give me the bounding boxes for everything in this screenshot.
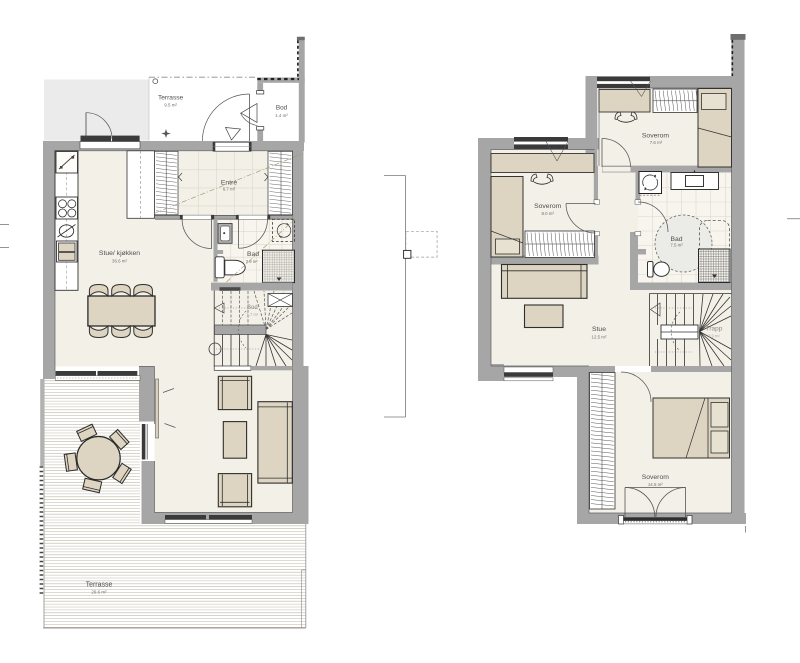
svg-text:Terrasse: Terrasse <box>86 581 113 588</box>
svg-text:Bad: Bad <box>247 251 259 258</box>
svg-text:Terrasse: Terrasse <box>158 94 184 101</box>
svg-text:7.5 m²: 7.5 m² <box>670 243 683 248</box>
svg-text:Soverom: Soverom <box>642 474 670 481</box>
svg-text:8.0 m²: 8.0 m² <box>541 211 554 216</box>
svg-text:36.6 m²: 36.6 m² <box>112 258 127 263</box>
svg-text:Stue: Stue <box>592 326 606 333</box>
svg-text:Soverom: Soverom <box>642 132 670 139</box>
svg-text:1.4 m²: 1.4 m² <box>275 113 288 118</box>
svg-text:6.7 m²: 6.7 m² <box>223 187 236 192</box>
svg-text:12.5 m²: 12.5 m² <box>592 334 607 339</box>
svg-text:29.6 m²: 29.6 m² <box>91 589 107 594</box>
svg-text:Stue/ kjøkken: Stue/ kjøkken <box>99 250 140 257</box>
svg-text:9.5 m²: 9.5 m² <box>164 102 177 107</box>
svg-text:Bod: Bod <box>276 105 288 112</box>
svg-text:7.6 m²: 7.6 m² <box>650 140 663 145</box>
svg-text:14.5 m²: 14.5 m² <box>648 482 663 487</box>
svg-text:Soverom: Soverom <box>534 203 562 210</box>
svg-text:1.7 m²: 1.7 m² <box>246 312 258 317</box>
svg-text:Trapp: Trapp <box>706 326 723 333</box>
svg-text:3.9 m²: 3.9 m² <box>708 334 720 339</box>
svg-text:Entré: Entré <box>221 180 237 187</box>
svg-text:3.9 m²: 3.9 m² <box>246 259 258 264</box>
